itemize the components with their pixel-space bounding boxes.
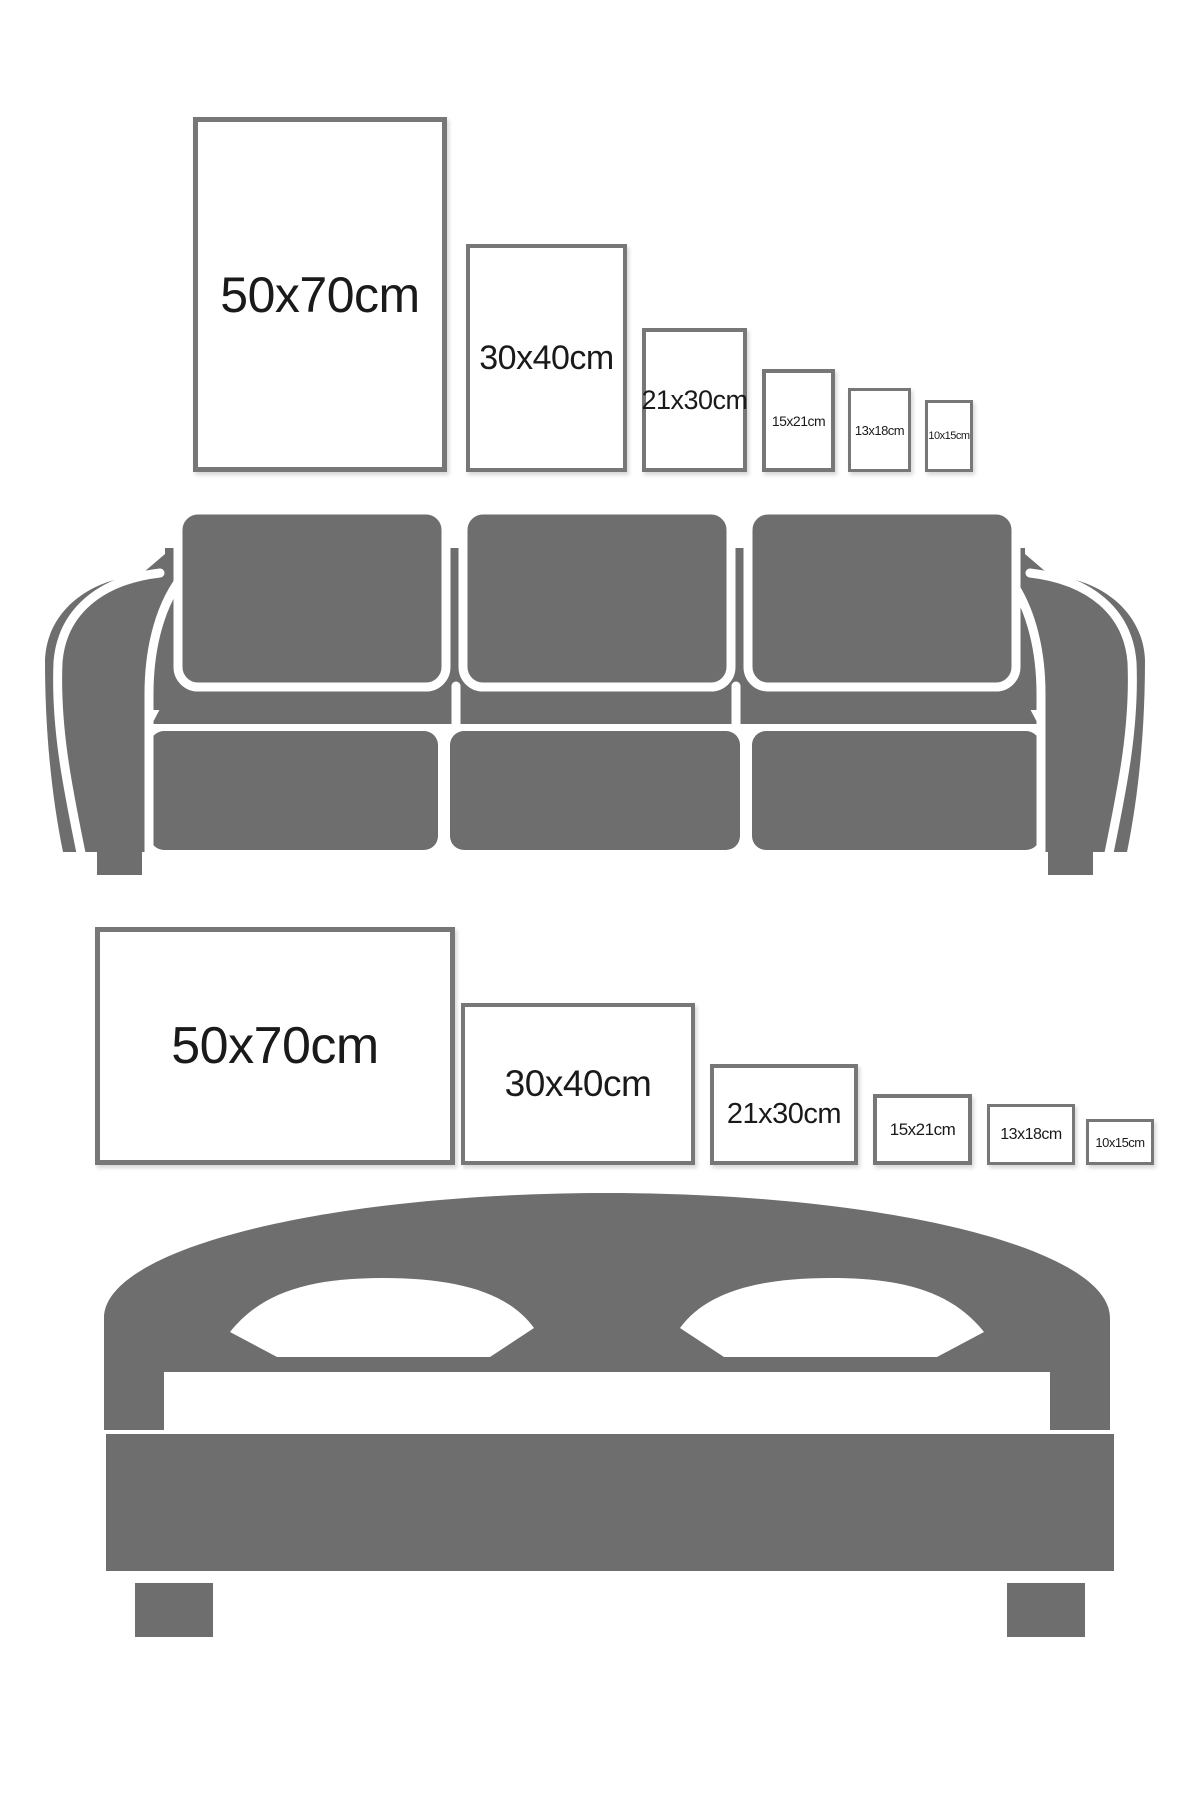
size-label: 13x18cm bbox=[855, 423, 904, 438]
sofa-back-cushion bbox=[748, 510, 1016, 687]
sofa-back-cushion bbox=[463, 510, 731, 687]
size-label: 21x30cm bbox=[727, 1098, 841, 1131]
poster-size-guide: 50x70cm 30x40cm 21x30cm 15x21cm 13x18cm … bbox=[0, 0, 1200, 1800]
size-frame-landscape-13x18: 13x18cm bbox=[987, 1104, 1075, 1165]
size-frame-landscape-50x70: 50x70cm bbox=[95, 927, 455, 1165]
size-label: 13x18cm bbox=[1000, 1126, 1061, 1144]
size-frame-landscape-15x21: 15x21cm bbox=[873, 1094, 972, 1165]
size-frame-landscape-30x40: 30x40cm bbox=[461, 1003, 695, 1165]
sofa-seat-deck bbox=[152, 690, 1038, 724]
sofa-seat-cushion bbox=[450, 731, 740, 850]
sofa-seat-cushion bbox=[752, 731, 1040, 850]
size-label: 30x40cm bbox=[505, 1063, 652, 1105]
size-label: 10x15cm bbox=[1095, 1135, 1144, 1150]
sofa-leg-right bbox=[1048, 850, 1093, 875]
sofa-leg-left bbox=[97, 850, 142, 875]
sofa-icon bbox=[0, 450, 1200, 890]
sofa-seat-cushion bbox=[150, 731, 438, 850]
size-frame-landscape-10x15: 10x15cm bbox=[1086, 1119, 1154, 1165]
size-label: 10x15cm bbox=[928, 430, 969, 442]
size-label: 15x21cm bbox=[890, 1120, 955, 1140]
size-frame-landscape-21x30: 21x30cm bbox=[710, 1064, 858, 1165]
size-label: 15x21cm bbox=[772, 413, 825, 429]
bed-leg-right bbox=[1007, 1583, 1085, 1637]
size-frame-portrait-30x40: 30x40cm bbox=[466, 244, 627, 472]
bed-icon bbox=[0, 1185, 1200, 1655]
bed-leg-left bbox=[135, 1583, 213, 1637]
size-label: 21x30cm bbox=[641, 385, 747, 416]
size-label: 50x70cm bbox=[171, 1016, 379, 1076]
bed-base bbox=[106, 1434, 1114, 1571]
size-label: 30x40cm bbox=[479, 339, 613, 378]
size-frame-portrait-50x70: 50x70cm bbox=[193, 117, 447, 472]
sofa-back-cushion bbox=[178, 510, 446, 687]
size-label: 50x70cm bbox=[220, 266, 419, 324]
